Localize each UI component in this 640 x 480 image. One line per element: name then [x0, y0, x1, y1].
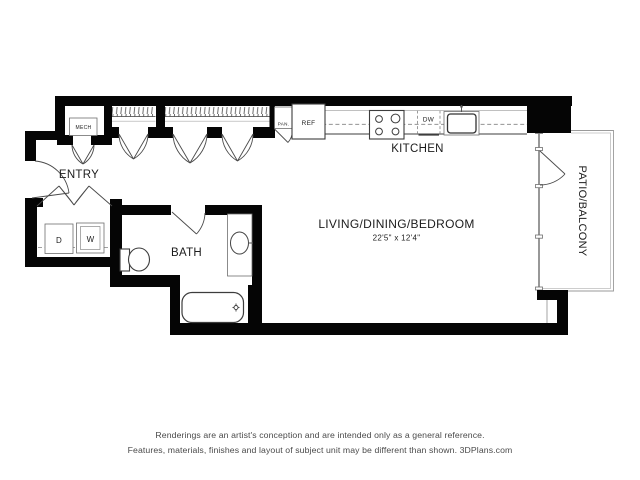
pantry-door [275, 129, 293, 143]
washer-label: W [87, 235, 95, 244]
disclaimer: Renderings are an artist's conception an… [0, 428, 640, 457]
bath-door [172, 212, 205, 234]
bathtub [182, 293, 244, 323]
kitchen-sink [444, 105, 479, 135]
dishwasher-label: DW [423, 117, 435, 124]
toilet [120, 248, 150, 271]
vanity-sink [228, 214, 254, 276]
laundry-fixtures [38, 223, 108, 254]
bath-label: BATH [171, 247, 202, 259]
floorplan-canvas: ENTRY KITCHEN BATH LIVING/DINING/BEDROOM… [0, 0, 640, 480]
disclaimer-line-2: Features, materials, finishes and layout… [0, 443, 640, 458]
dryer-label: D [56, 236, 62, 245]
closet-door-1 [119, 134, 148, 159]
closet-door-2 [173, 134, 207, 163]
mech-door [72, 145, 94, 164]
living-dimensions: 22'5" x 12'4" [373, 234, 421, 243]
refrigerator-label: REF [302, 120, 316, 127]
patio-window-wall [536, 131, 543, 291]
floorplan-drawing: ENTRY KITCHEN BATH LIVING/DINING/BEDROOM… [0, 0, 640, 480]
entry-label: ENTRY [59, 169, 99, 181]
kitchen-label: KITCHEN [391, 143, 444, 155]
mech-label: MECH [76, 125, 92, 131]
laundry-closet-doors [37, 186, 112, 206]
pantry-label: PAN. [278, 122, 290, 127]
stove [370, 111, 405, 140]
living-label: LIVING/DINING/BEDROOM [318, 217, 474, 231]
patio-door [540, 151, 565, 185]
patio-label: PATIO/BALCONY [576, 166, 588, 257]
closet-hatching [112, 107, 270, 121]
closet-door-3 [222, 134, 253, 161]
disclaimer-line-1: Renderings are an artist's conception an… [0, 428, 640, 443]
